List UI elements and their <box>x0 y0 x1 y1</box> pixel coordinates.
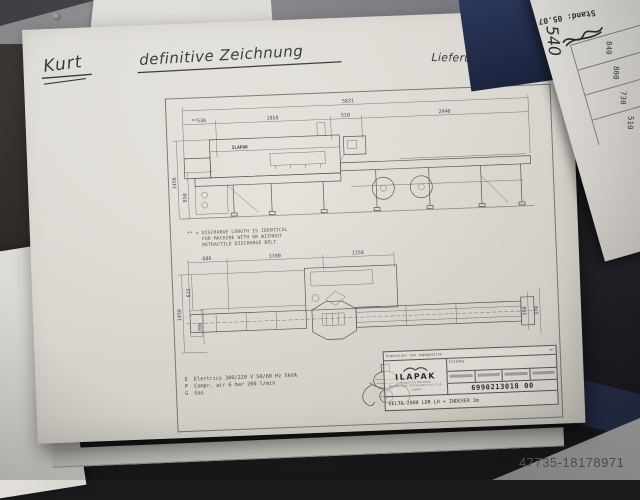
watermark-id: 47735-18178971 <box>519 455 624 470</box>
dim-body: 1858 <box>266 115 278 121</box>
plan-dim-width-total: 1450 <box>177 309 183 321</box>
dim-mid: 510 <box>341 112 350 118</box>
title-block: Dimensioni non impegnative ⊙□ ILAPAK Ind… <box>383 345 559 412</box>
field-cell <box>530 368 557 380</box>
double-underline <box>40 73 96 87</box>
plan-dim-belt-frame: 370 <box>534 306 540 315</box>
dim-height-total: 1456 <box>172 177 178 189</box>
plan-dim-a: 686 <box>202 256 211 262</box>
screw-head <box>52 12 61 21</box>
plan-dim-width-a: 615 <box>186 288 192 297</box>
field-cell <box>447 371 475 383</box>
dim-discharge: 2940 <box>438 109 450 115</box>
plan-dim-belt-width: 350 <box>522 306 528 315</box>
drawing-frame: 5831 **536 1858 510 2940 1456 850 ILAPAK <box>165 84 564 433</box>
machine-logo-text: ILAPAK <box>232 144 249 151</box>
machine-description: DELTA 2000 LDR LH + INDEXER 3m <box>389 397 479 406</box>
dim-total-length: 5831 <box>342 98 354 104</box>
brand-subline-3: Lugano <box>411 388 421 392</box>
dim-height-belt: 850 <box>182 193 188 202</box>
utility-gas: G Gas <box>185 390 204 397</box>
plan-dim-b: 1700 <box>269 253 281 259</box>
plan-dim-c: 1258 <box>352 250 364 256</box>
projection-symbol-icon: ⊙□ <box>549 348 553 352</box>
ilapak-logo: ILAPAK Industria Macchine Automatiche Co… <box>384 359 448 396</box>
field-cell <box>475 370 503 382</box>
dim-infeed: **536 <box>191 118 206 125</box>
side-view-drawing: 5831 **536 1858 510 2940 1456 850 ILAPAK <box>168 87 547 229</box>
field-cell <box>502 369 530 381</box>
utilities-list: E Electrics 380/220 V 50/60 Hz 5kVA P Co… <box>184 373 297 398</box>
header-note: Dimensioni non impegnative <box>386 352 442 358</box>
discharge-note: ** = DISCHARGE LENGTH IS IDENTICAL FOR M… <box>187 228 288 250</box>
